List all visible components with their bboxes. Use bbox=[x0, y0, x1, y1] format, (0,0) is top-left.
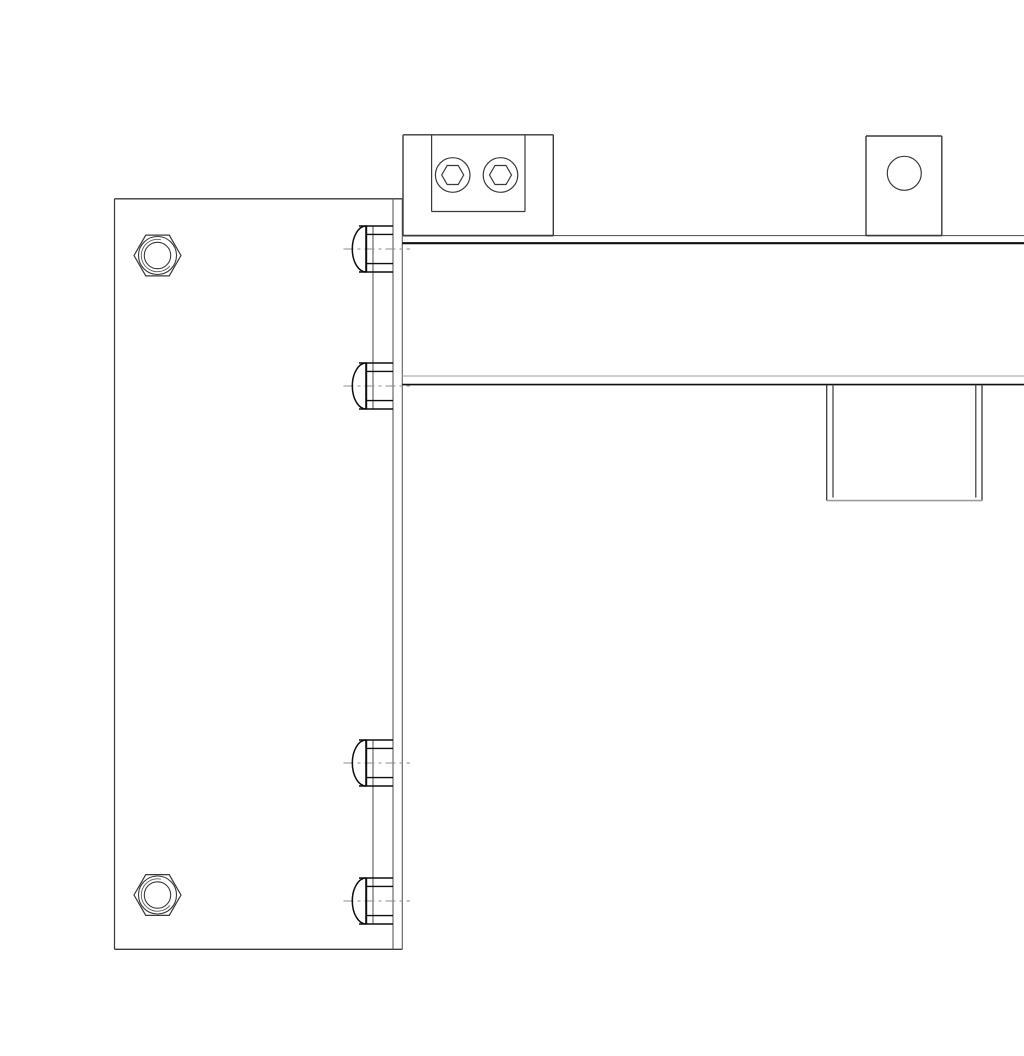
mounting-plate bbox=[115, 199, 403, 950]
cad-drawing-view bbox=[40, 16, 1024, 1040]
hex-nut-lower bbox=[134, 875, 181, 916]
bracket-nut-hole-1 bbox=[435, 158, 470, 193]
button-head-bolt-2 bbox=[344, 363, 411, 409]
cross-beam bbox=[402, 236, 1024, 385]
hex-nut-upper bbox=[134, 235, 181, 276]
button-head-bolt-1 bbox=[344, 226, 411, 272]
end-block bbox=[827, 385, 982, 501]
tab-hole bbox=[887, 156, 921, 190]
clamp-bracket bbox=[403, 135, 553, 236]
button-head-bolt-4 bbox=[344, 878, 411, 924]
drawing-canvas bbox=[40, 16, 1024, 1040]
bracket-nut-hole-2 bbox=[483, 158, 518, 193]
lifting-tab bbox=[866, 136, 942, 236]
button-head-bolt-3 bbox=[344, 740, 411, 786]
